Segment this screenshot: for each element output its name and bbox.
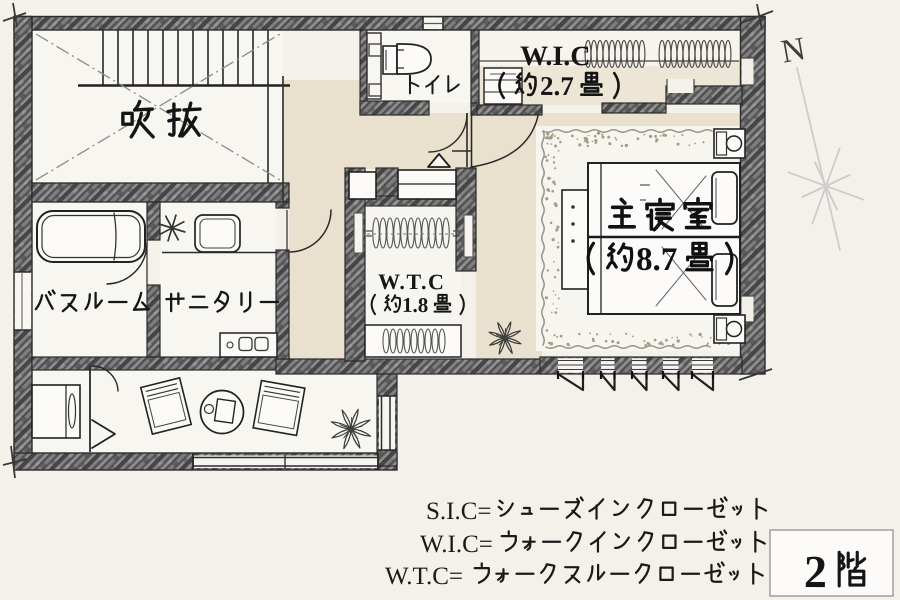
svg-text:W.T.C: W.T.C — [378, 269, 446, 294]
svg-text:2.7: 2.7 — [540, 71, 574, 101]
svg-text:W.T.C=: W.T.C= — [385, 563, 463, 590]
svg-text:S.I.C=: S.I.C= — [426, 498, 492, 525]
svg-text:2: 2 — [804, 546, 827, 597]
svg-text:8.7: 8.7 — [636, 242, 677, 278]
svg-text:1.8: 1.8 — [402, 293, 428, 317]
svg-text:W.I.C: W.I.C — [520, 41, 591, 72]
svg-text:W.I.C=: W.I.C= — [420, 531, 493, 558]
